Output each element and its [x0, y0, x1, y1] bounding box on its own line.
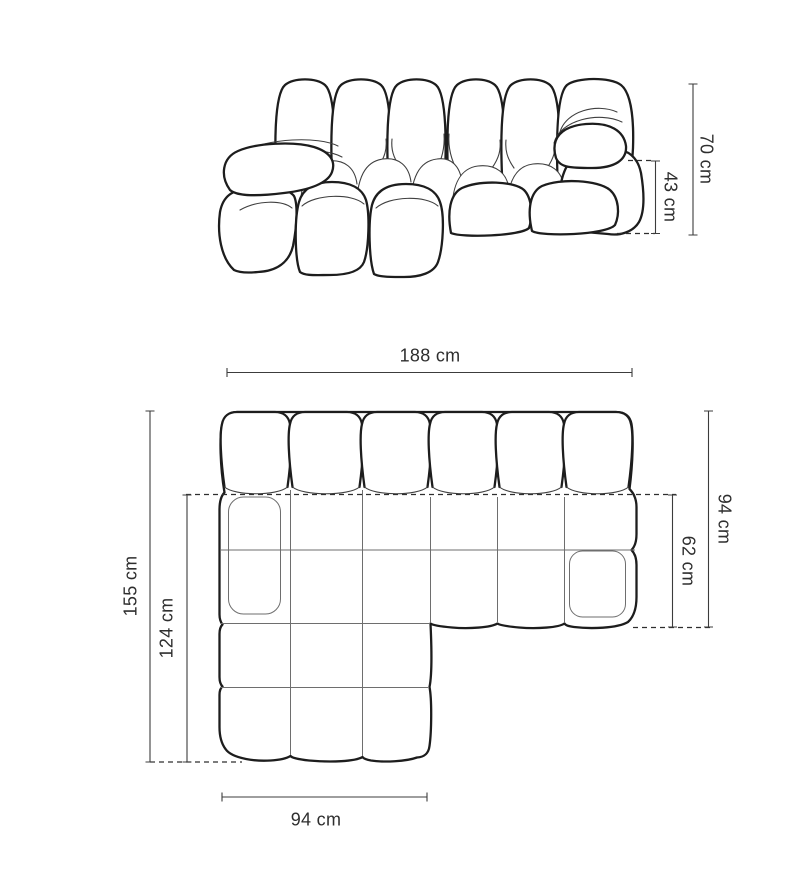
sofa-line-drawing — [0, 0, 808, 869]
sofa-dimension-diagram: 70 cm 43 cm 188 cm 94 cm 62 cm 155 cm 12… — [0, 0, 808, 869]
plan-back-cushions — [221, 412, 633, 494]
dim-label-left-depth-total: 155 cm — [121, 556, 142, 617]
dim-label-left-depth-inner: 124 cm — [157, 598, 178, 659]
dim-label-right-depth-total: 94 cm — [714, 494, 735, 545]
side-view-drawing — [219, 79, 697, 277]
dim-label-seat-depth: 62 cm — [678, 536, 699, 587]
dim-label-chaise-width: 94 cm — [291, 810, 342, 831]
top-view-drawing — [146, 368, 714, 802]
dim-line-right-depth-total — [704, 411, 713, 627]
dim-line-total-width — [227, 368, 632, 377]
dim-line-seat-depth — [668, 495, 677, 627]
dim-label-seat-height: 43 cm — [660, 172, 681, 223]
dim-line-chaise-width — [222, 793, 427, 802]
dim-line-left-depth-inner — [183, 495, 192, 762]
dim-label-total-width: 188 cm — [400, 346, 461, 367]
dim-label-total-height: 70 cm — [696, 134, 717, 185]
dim-line-left-depth-total — [146, 411, 155, 762]
